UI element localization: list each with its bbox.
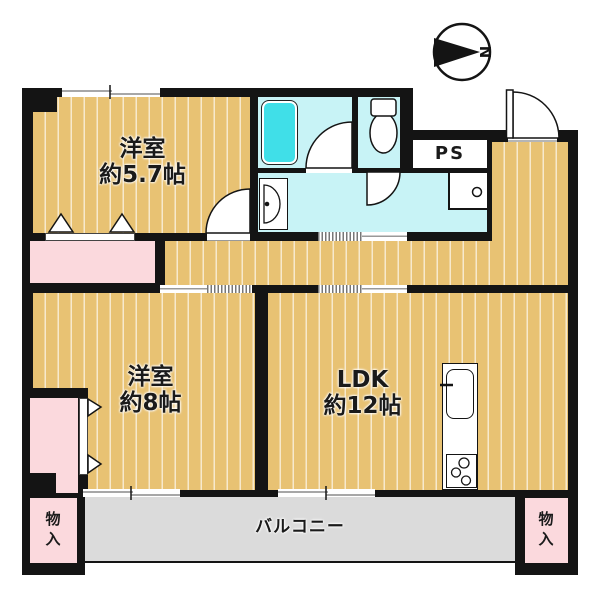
sliding-door-ldk <box>362 285 407 293</box>
floor-plan: PS <box>0 0 600 595</box>
washbasin-counter <box>259 178 288 230</box>
bedroom-large-name: 洋室 <box>128 364 174 390</box>
bath-door-threshold <box>306 168 352 173</box>
balcony-label-text: バルコニー <box>255 518 345 538</box>
window-balcony-ldk <box>278 489 375 497</box>
bifold-closet-door-bedroom-small <box>45 233 135 241</box>
bedroom-small-label: 洋室 約5.7帖 <box>50 136 235 189</box>
sliding-door-washroom <box>362 232 407 241</box>
ldk-name: LDK <box>337 367 389 393</box>
window-balcony-bedroom-large <box>83 489 180 497</box>
bedroom-small-name: 洋室 <box>120 136 166 162</box>
compass: N <box>434 24 494 80</box>
closet-bedroom-large-corner-pillar <box>30 473 56 493</box>
bedroom-small-corner-pillar <box>33 97 57 112</box>
compass-north-arrow-icon <box>434 38 480 67</box>
bedroom-small-door-threshold <box>207 233 250 241</box>
bedroom-large-label: 洋室 約8帖 <box>58 364 243 417</box>
pipe-space: PS <box>413 140 487 168</box>
bathtub <box>262 101 297 164</box>
sliding-door-ldk-track <box>318 285 362 293</box>
window-bedroom-small <box>62 88 160 97</box>
balcony-label: バルコニー <box>200 518 400 538</box>
toilet-room-floor <box>358 97 400 168</box>
washroom-floor-right <box>448 210 487 232</box>
sliding-door-bedroom-large-track <box>207 285 252 293</box>
bedroom-large-size: 約8帖 <box>119 390 181 416</box>
storage-right-label: 物入 <box>535 509 557 550</box>
compass-circle <box>434 24 490 80</box>
bedroom-small-size: 約5.7帖 <box>99 162 186 188</box>
hallway-floor <box>165 241 492 285</box>
sliding-door-washroom-track <box>318 232 362 241</box>
pipe-space-label: PS <box>435 144 465 165</box>
ldk-size: 約12帖 <box>323 393 401 419</box>
sliding-door-bedroom-large <box>160 285 207 293</box>
entry-door-opening <box>508 130 557 142</box>
compass-north-label: N <box>476 46 494 59</box>
entrance-floor <box>492 142 568 285</box>
washing-machine-space <box>448 173 487 210</box>
closet-bedroom-small <box>30 241 155 283</box>
storage-left-label: 物入 <box>42 509 64 550</box>
ldk-label: LDK 約12帖 <box>270 367 455 420</box>
kitchen-stove <box>446 454 477 488</box>
